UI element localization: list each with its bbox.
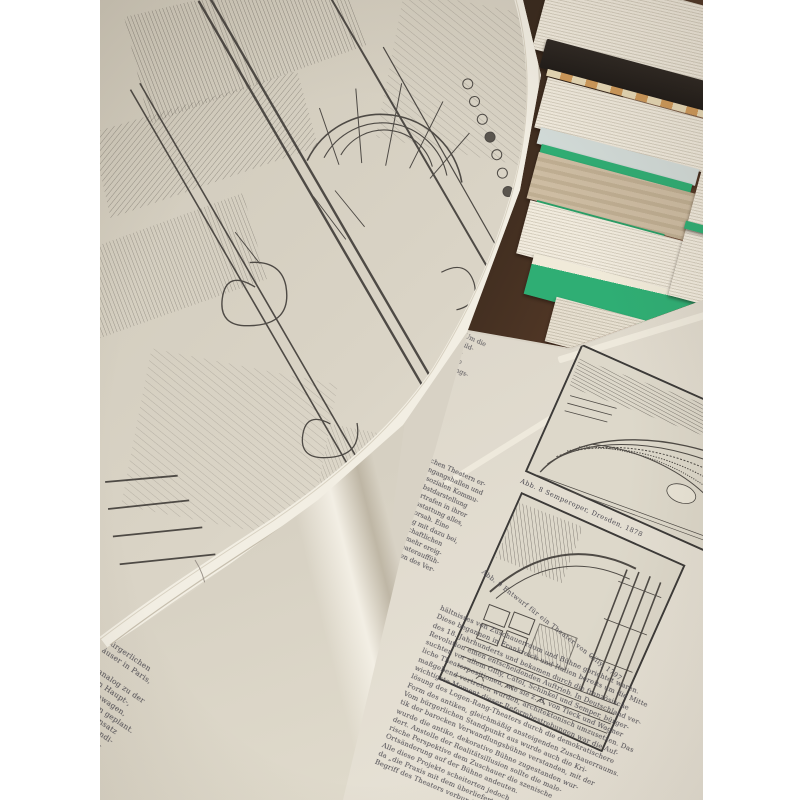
photo-of-open-book: gen, die dem Adel vorbehalten blieben, e…	[0, 0, 800, 800]
book-photo: gen, die dem Adel vorbehalten blieben, e…	[100, 0, 703, 800]
